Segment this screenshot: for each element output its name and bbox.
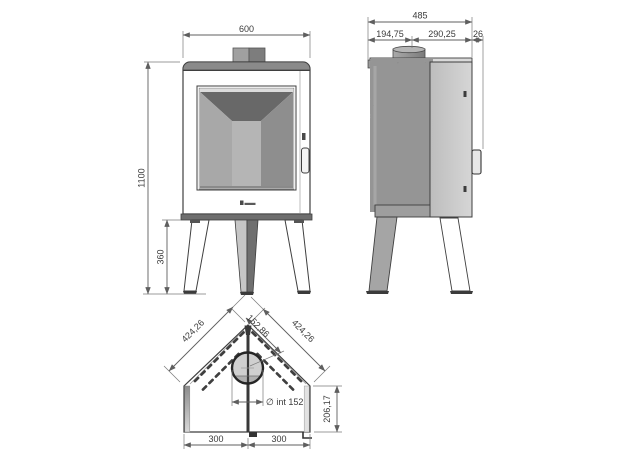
- technical-drawing-page: 600 1100 360: [0, 0, 624, 460]
- front-flue-collar: [233, 48, 265, 63]
- bottom-right-edge-strip: [304, 386, 309, 432]
- side-base-band: [375, 205, 430, 217]
- dim-label-rear-to-flue: 194,75: [376, 29, 404, 39]
- front-top-plate: [183, 62, 310, 70]
- flue-hole: [232, 353, 263, 384]
- canvas-background: [0, 0, 624, 460]
- front-door-window: [197, 86, 296, 190]
- bottom-center-foot: [249, 432, 257, 437]
- dim-label-bottom-right: 300: [271, 434, 286, 444]
- dim-label-bottom-left: 300: [208, 434, 223, 444]
- dim-label-front-height: 1100: [137, 168, 147, 187]
- side-door-handle: [472, 150, 481, 174]
- dim-label-rear-depth: 206,17: [322, 395, 332, 423]
- front-base-plate: [181, 214, 312, 220]
- side-screw-top: [464, 91, 467, 97]
- dim-label-front-leg-height: 360: [156, 249, 166, 264]
- dim-label-front-width: 600: [239, 24, 254, 34]
- side-screw-bottom: [464, 186, 467, 192]
- firebox-back-panel: [232, 121, 261, 186]
- dim-label-side-depth: 485: [412, 11, 427, 21]
- side-front-panel: [430, 62, 472, 217]
- dim-label-flue-to-front: 290,25: [428, 29, 456, 39]
- stove-dimension-drawing: 600 1100 360: [0, 0, 624, 460]
- dim-label-flue-diameter: ∅ int 152: [266, 397, 303, 407]
- firebox-floor-strip: [200, 186, 293, 189]
- bottom-left-edge-strip: [185, 386, 190, 432]
- side-stone-panel: [373, 62, 430, 205]
- dim-label-handle-depth: 26: [473, 29, 483, 39]
